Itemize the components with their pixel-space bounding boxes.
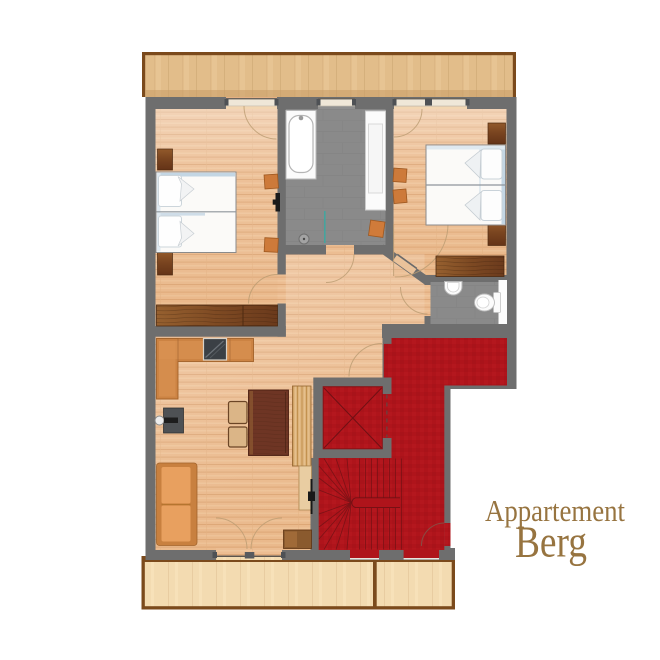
svg-text:Berg: Berg — [515, 518, 587, 567]
